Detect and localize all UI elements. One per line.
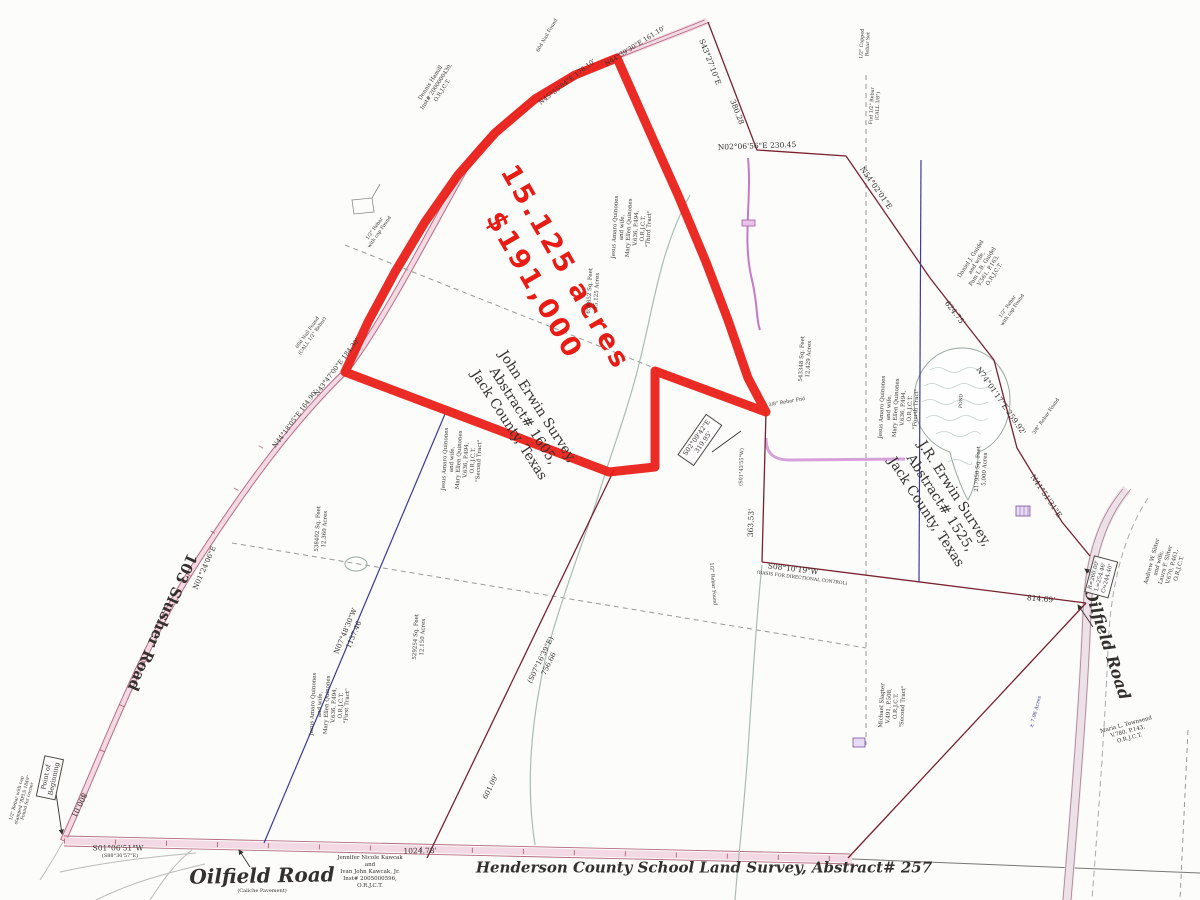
old-tract-lines [264,160,921,843]
small-pond [345,557,367,571]
oilfield-road-right-band [1063,489,1148,900]
leader-arrows [56,431,1094,867]
road-row-dashed [1092,498,1148,900]
survey-linework [0,0,1200,900]
survey-map: 15.125 acres $191,000John Erwin Survey, … [0,0,1200,900]
dashed-survey-lines [232,75,1188,900]
pond [914,348,1010,500]
creek-lines [530,195,762,900]
intersection-detail [40,842,205,900]
oilfield-road-bottom-band [64,836,1200,873]
structure [352,184,380,214]
fence-ticks-slusher [63,432,270,841]
slusher-road-band [61,20,710,842]
survey-line-east [852,859,1200,873]
culvert-symbols [853,506,1030,747]
